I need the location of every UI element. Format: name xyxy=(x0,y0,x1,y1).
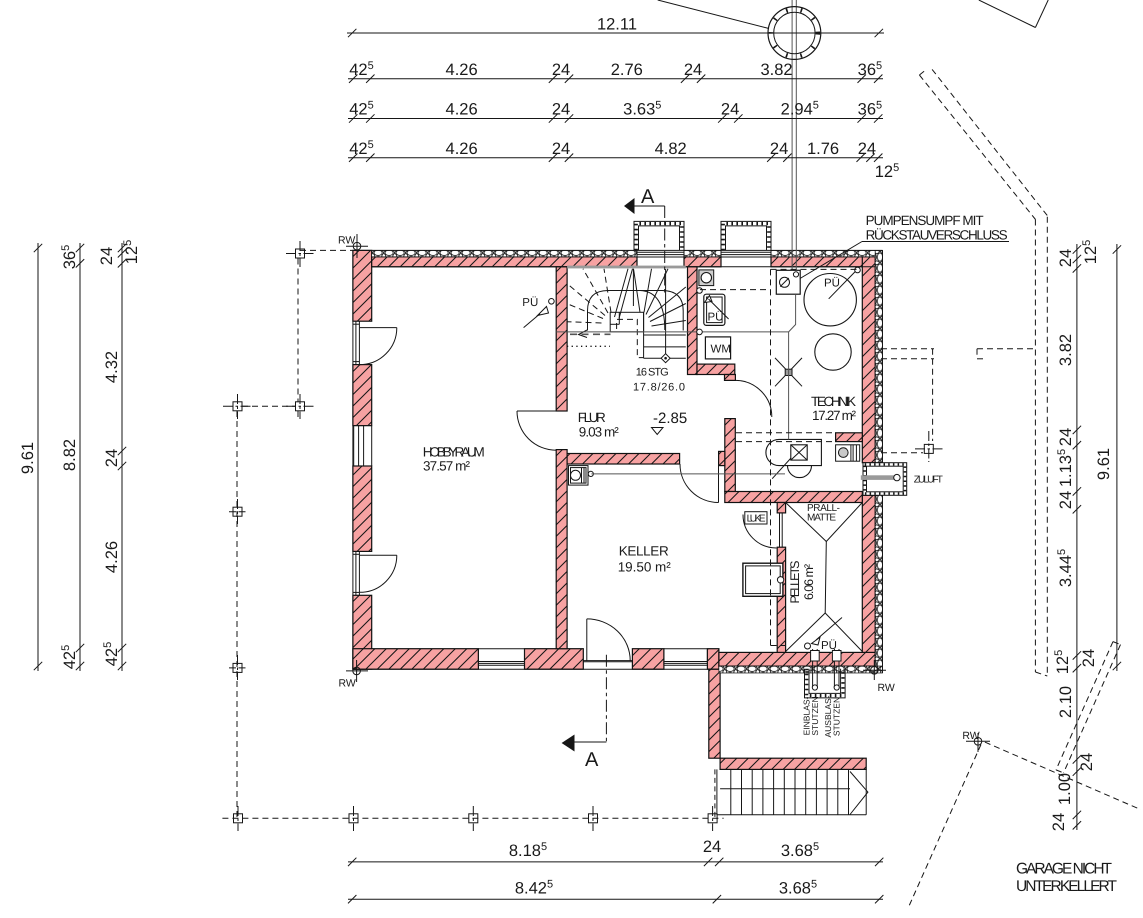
svg-text:WM: WM xyxy=(711,344,731,356)
svg-text:24: 24 xyxy=(721,101,739,119)
svg-text:RW: RW xyxy=(338,235,355,247)
svg-text:9.61: 9.61 xyxy=(19,442,37,474)
svg-text:PELLETS: PELLETS xyxy=(788,561,802,604)
svg-text:24: 24 xyxy=(684,61,702,79)
svg-text:12.11: 12.11 xyxy=(597,16,637,34)
svg-text:24: 24 xyxy=(1050,813,1068,831)
svg-text:HOBBYRAUM: HOBBYRAUM xyxy=(423,445,485,460)
svg-text:ZULUFT: ZULUFT xyxy=(914,475,943,486)
svg-text:STUTZEN: STUTZEN xyxy=(832,697,842,736)
svg-text:RW: RW xyxy=(878,682,895,694)
svg-text:PÜ: PÜ xyxy=(708,311,724,324)
svg-text:3.82: 3.82 xyxy=(760,61,792,79)
svg-text:6.06 m²: 6.06 m² xyxy=(802,564,816,600)
svg-text:STUTZEN: STUTZEN xyxy=(810,696,820,735)
svg-text:24: 24 xyxy=(1057,428,1075,446)
svg-text:24: 24 xyxy=(770,140,788,158)
svg-text:24: 24 xyxy=(552,101,570,119)
svg-text:24: 24 xyxy=(552,140,570,158)
svg-text:3.82: 3.82 xyxy=(1057,334,1075,366)
svg-text:24: 24 xyxy=(552,61,570,79)
svg-text:RW: RW xyxy=(339,678,356,690)
svg-text:1.76: 1.76 xyxy=(807,140,839,158)
svg-text:17.27 m²: 17.27 m² xyxy=(812,408,857,423)
svg-text:2.76: 2.76 xyxy=(611,61,643,79)
svg-text:PÜ: PÜ xyxy=(522,296,538,309)
svg-text:GARAGE NICHT: GARAGE NICHT xyxy=(1016,861,1113,878)
svg-text:-2.85: -2.85 xyxy=(653,410,687,427)
svg-text:A: A xyxy=(585,749,599,771)
svg-text:PÜ: PÜ xyxy=(824,277,840,290)
svg-text:4.26: 4.26 xyxy=(446,140,478,158)
svg-text:24: 24 xyxy=(1080,649,1098,667)
svg-text:UNTERKELLERT: UNTERKELLERT xyxy=(1016,878,1118,895)
svg-text:17.8/26.0: 17.8/26.0 xyxy=(633,382,685,394)
svg-text:PUMPENSUMPF MIT: PUMPENSUMPF MIT xyxy=(866,213,984,228)
svg-text:24: 24 xyxy=(1057,491,1075,509)
svg-text:MATTE: MATTE xyxy=(807,513,836,524)
svg-text:24: 24 xyxy=(98,247,116,265)
svg-text:24: 24 xyxy=(858,140,876,158)
svg-text:37.57 m²: 37.57 m² xyxy=(423,459,471,474)
svg-text:4.26: 4.26 xyxy=(103,541,121,573)
svg-text:19.50 m²: 19.50 m² xyxy=(618,560,672,575)
svg-text:24: 24 xyxy=(1078,753,1096,771)
svg-text:RÜCKSTAUVERSCHLUSS: RÜCKSTAUVERSCHLUSS xyxy=(866,228,1008,243)
svg-text:8.82: 8.82 xyxy=(61,439,79,471)
svg-text:1.00: 1.00 xyxy=(1056,773,1074,805)
svg-text:4.26: 4.26 xyxy=(446,61,478,79)
svg-text:24: 24 xyxy=(103,449,121,467)
svg-text:4.26: 4.26 xyxy=(446,101,478,119)
svg-text:2.10: 2.10 xyxy=(1057,686,1075,718)
svg-text:PÜ: PÜ xyxy=(821,639,837,652)
svg-text:4.82: 4.82 xyxy=(655,140,687,158)
svg-text:TECHNIK: TECHNIK xyxy=(811,394,856,409)
svg-text:16 STG: 16 STG xyxy=(636,367,669,379)
svg-text:KELLER: KELLER xyxy=(619,544,669,559)
svg-text:LUKE: LUKE xyxy=(747,514,766,525)
svg-text:A: A xyxy=(641,186,655,208)
svg-text:FLUR: FLUR xyxy=(578,410,606,425)
svg-text:4.32: 4.32 xyxy=(103,351,121,383)
svg-text:9.03 m²: 9.03 m² xyxy=(579,424,620,439)
svg-text:24: 24 xyxy=(703,838,721,856)
svg-text:9.61: 9.61 xyxy=(1095,448,1113,480)
svg-text:RW: RW xyxy=(962,730,979,742)
svg-text:24: 24 xyxy=(1057,249,1075,267)
